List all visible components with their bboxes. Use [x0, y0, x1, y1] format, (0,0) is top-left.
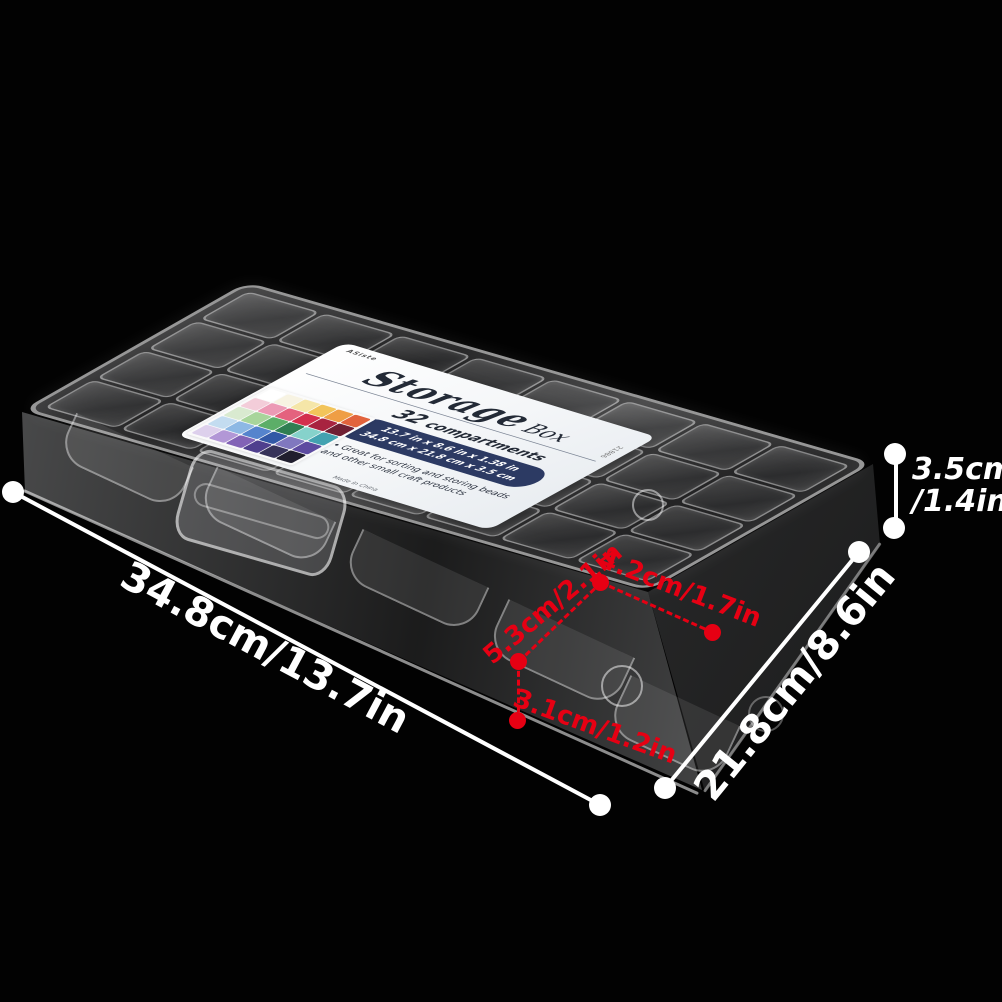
product-photo-scene: ASiste 21886 StorageBox 32 compartments …	[0, 0, 1002, 1002]
white-endpoint-dot	[883, 517, 905, 539]
white-endpoint-dot	[884, 443, 906, 465]
height-cm: 3.5cm	[912, 454, 1002, 486]
white-endpoint-dot	[654, 777, 676, 799]
finger-hole	[601, 665, 643, 707]
label-title-suffix: Box	[516, 421, 578, 445]
white-endpoint-dot	[589, 794, 611, 816]
compartment-bottom-bump	[341, 529, 490, 635]
height-in: /1.4in	[912, 486, 1002, 518]
red-endpoint-dot	[704, 624, 721, 641]
white-endpoint-dot	[2, 481, 24, 503]
height-dimension-text: 3.5cm /1.4in	[912, 454, 1002, 517]
